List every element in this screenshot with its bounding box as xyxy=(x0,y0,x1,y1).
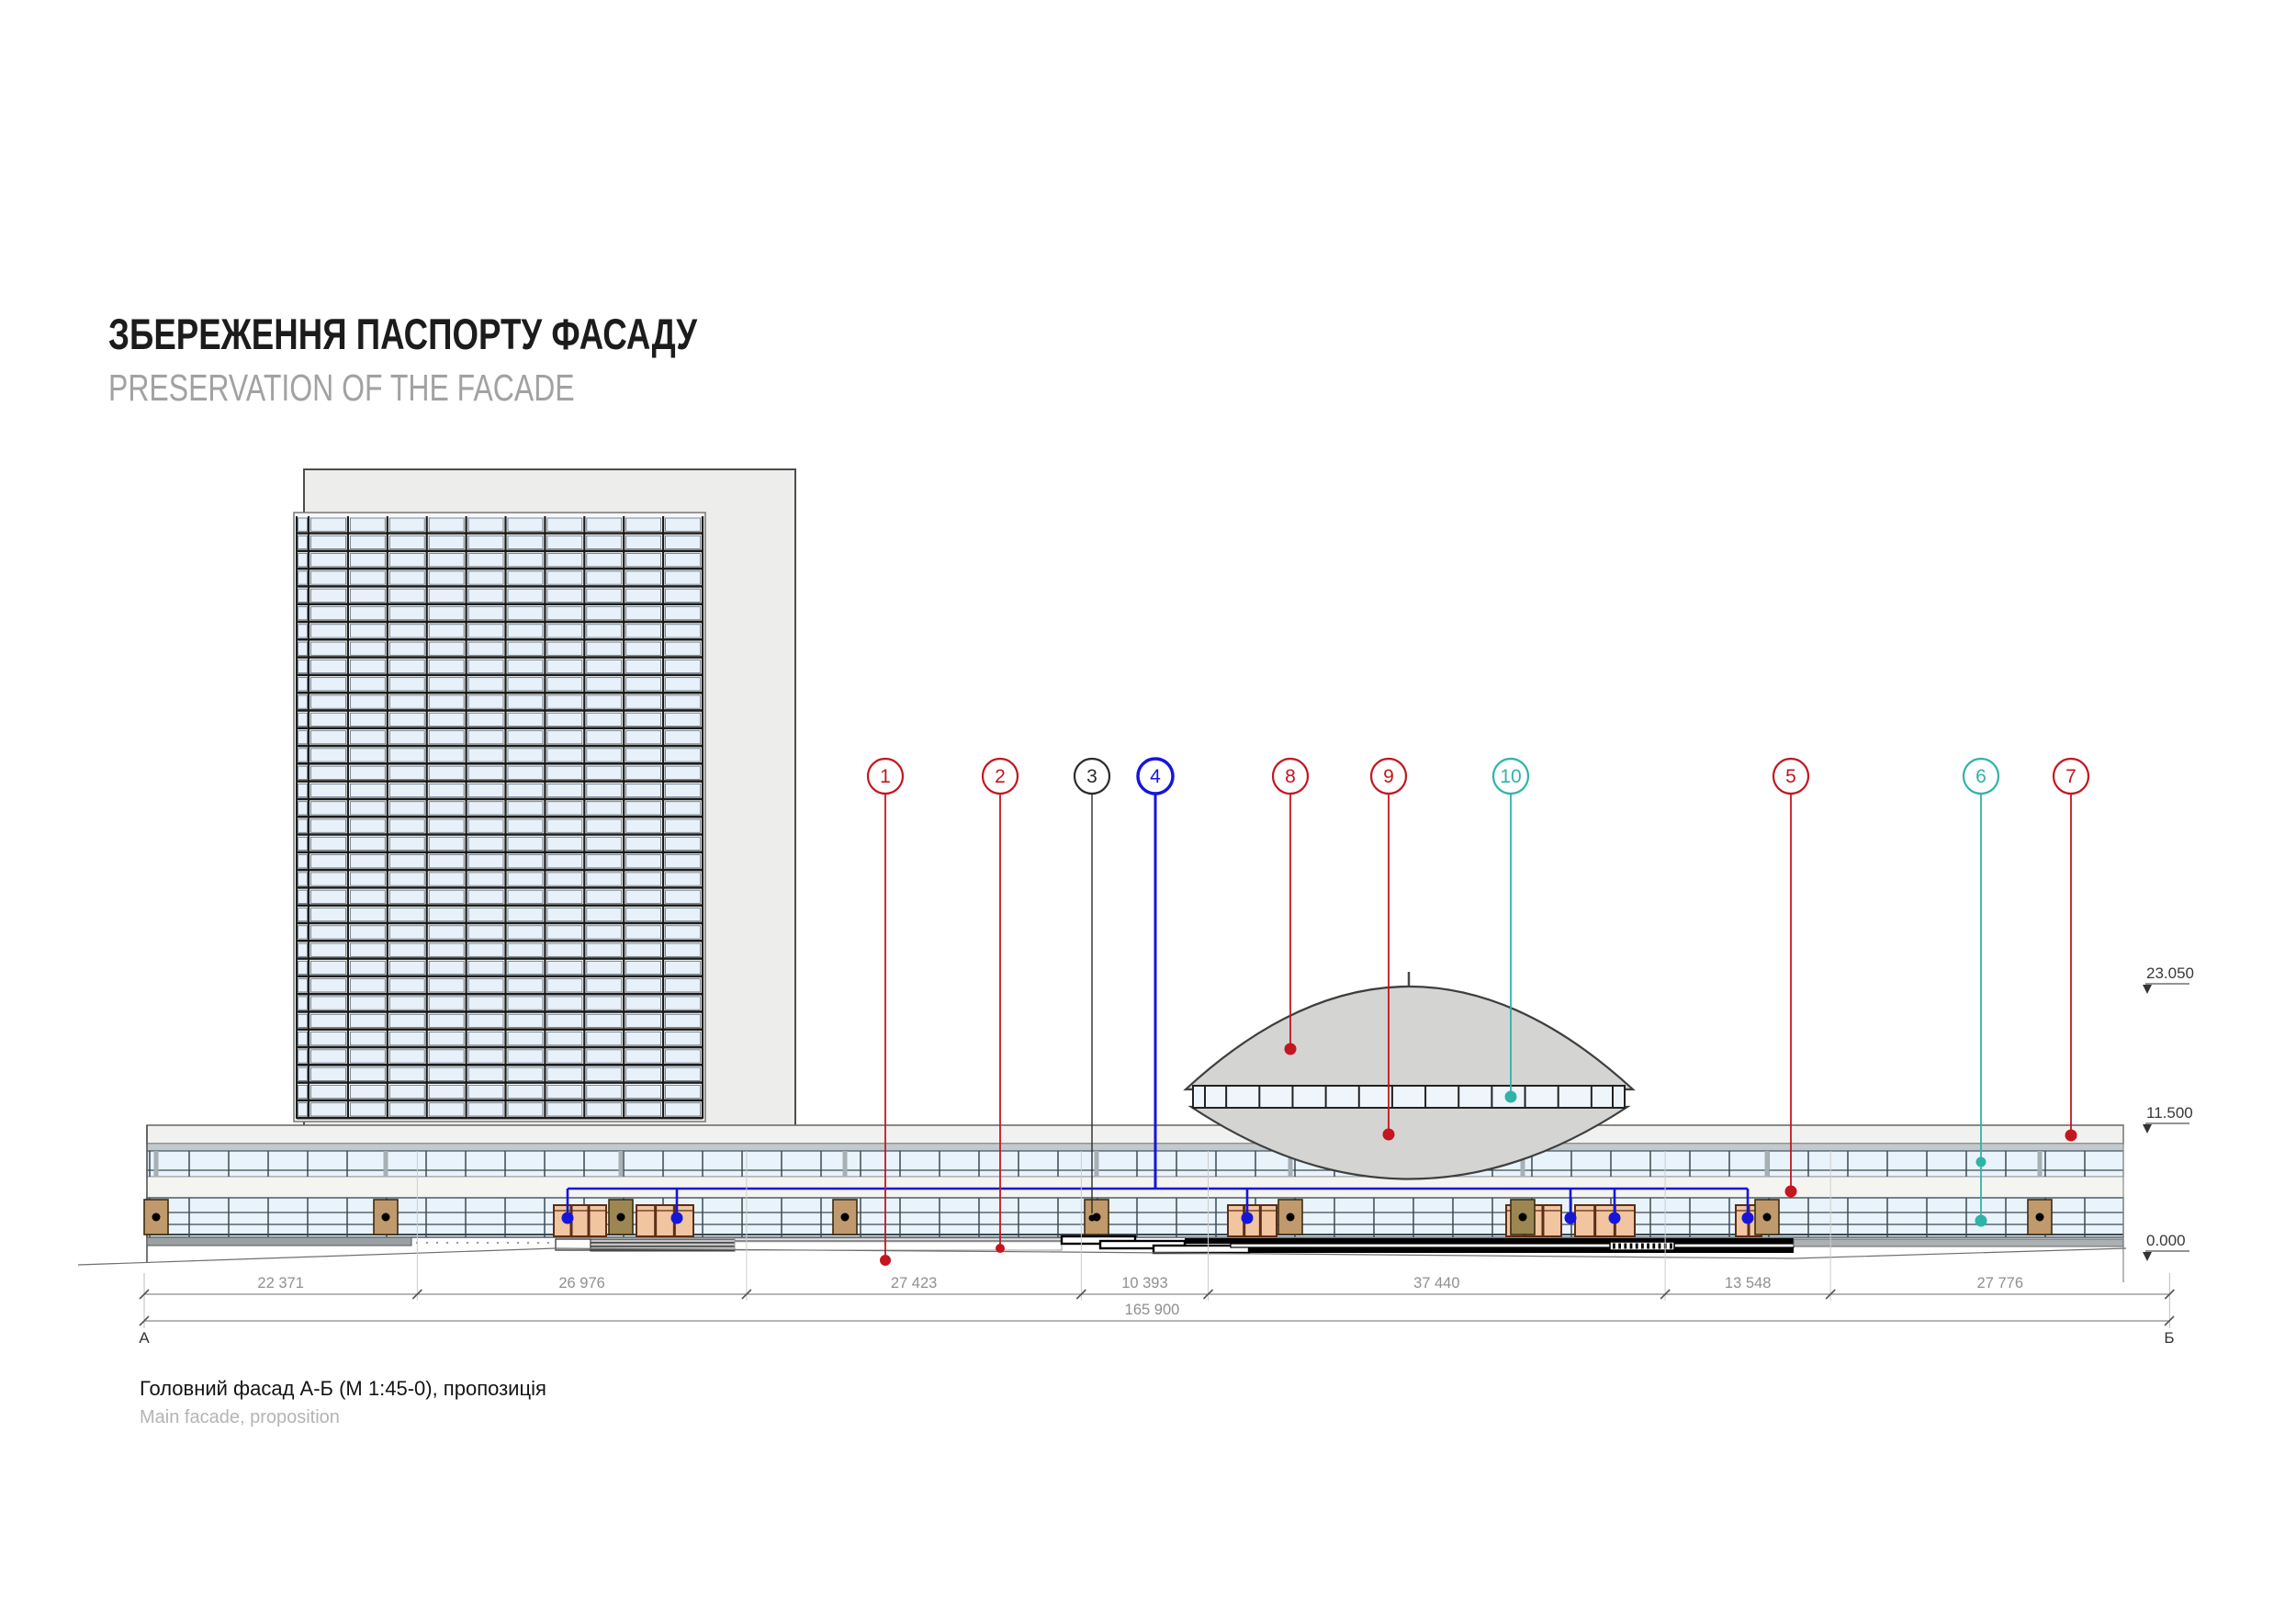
dimension-label: 26 976 xyxy=(558,1275,604,1291)
elevation-mark: 11.500 xyxy=(2143,1104,2193,1133)
dimension-label: 10 393 xyxy=(1121,1275,1167,1291)
tower-block xyxy=(294,469,795,1127)
elevation-value: 0.000 xyxy=(2146,1232,2186,1249)
dimension-label: 13 548 xyxy=(1725,1275,1771,1291)
door-marker-dot xyxy=(671,1212,683,1224)
plinth-strip-right xyxy=(1794,1239,2123,1246)
axis-label-a: А xyxy=(139,1329,150,1347)
dimension-label: 37 440 xyxy=(1413,1275,1459,1291)
callout-number: 10 xyxy=(1500,766,1521,787)
dimension-label: 27 776 xyxy=(1977,1275,2023,1291)
dimension-label: 22 371 xyxy=(257,1275,303,1291)
callout-number: 1 xyxy=(880,766,891,787)
door-marker-dot xyxy=(1742,1212,1754,1224)
callout-number: 4 xyxy=(1150,766,1161,787)
drawing-caption: Головний фасад А-Б (М 1:45-0), пропозиці… xyxy=(140,1377,546,1428)
upper-glass-band xyxy=(147,1151,2123,1177)
drawing-sheet: ЗБЕРЕЖЕННЯ ПАСПОРТУ ФАСАДУ PRESERVATION … xyxy=(0,0,2296,1624)
callout-number: 5 xyxy=(1785,766,1796,787)
caption-title: Головний фасад А-Б (М 1:45-0), пропозиці… xyxy=(140,1377,546,1401)
plinth-strip-left xyxy=(147,1237,411,1246)
ground-line xyxy=(78,1248,2126,1265)
total-dimension-label: 165 900 xyxy=(1125,1302,1180,1318)
dome-window-band xyxy=(1193,1086,1625,1108)
elevation-value: 23.050 xyxy=(2146,964,2194,982)
callout-number: 3 xyxy=(1086,766,1097,787)
door-marker-dot xyxy=(1242,1212,1254,1224)
callout-7: 7 xyxy=(2054,759,2088,1142)
dimension-label: 27 423 xyxy=(891,1275,937,1291)
long-building xyxy=(147,1125,2123,1282)
dome-upper-shell xyxy=(1186,987,1633,1089)
callout-number: 7 xyxy=(2065,766,2077,787)
spandrel-band xyxy=(147,1177,2123,1198)
callout-number: 6 xyxy=(1975,766,1986,787)
lower-glass-band xyxy=(147,1198,2123,1237)
caption-subtitle: Main facade, proposition xyxy=(140,1407,546,1428)
door-marker-dot xyxy=(1565,1212,1577,1224)
callout-4: 4 xyxy=(1138,759,1173,794)
callout-number: 9 xyxy=(1383,766,1394,787)
door-marker-dot xyxy=(562,1212,574,1224)
door-marker-dot xyxy=(1609,1212,1621,1224)
callout-number: 2 xyxy=(995,766,1006,787)
elevation-value: 11.500 xyxy=(2146,1104,2193,1122)
axis-label-b: Б xyxy=(2164,1329,2174,1347)
stairs-outline xyxy=(1062,1236,1794,1253)
elevation-marks: 23.05011.5000.000 xyxy=(2143,964,2194,1261)
callout-number: 8 xyxy=(1285,766,1296,787)
elevation-mark: 23.050 xyxy=(2143,964,2194,994)
elevation-mark: 0.000 xyxy=(2143,1232,2189,1261)
parapet-band xyxy=(147,1125,2123,1144)
